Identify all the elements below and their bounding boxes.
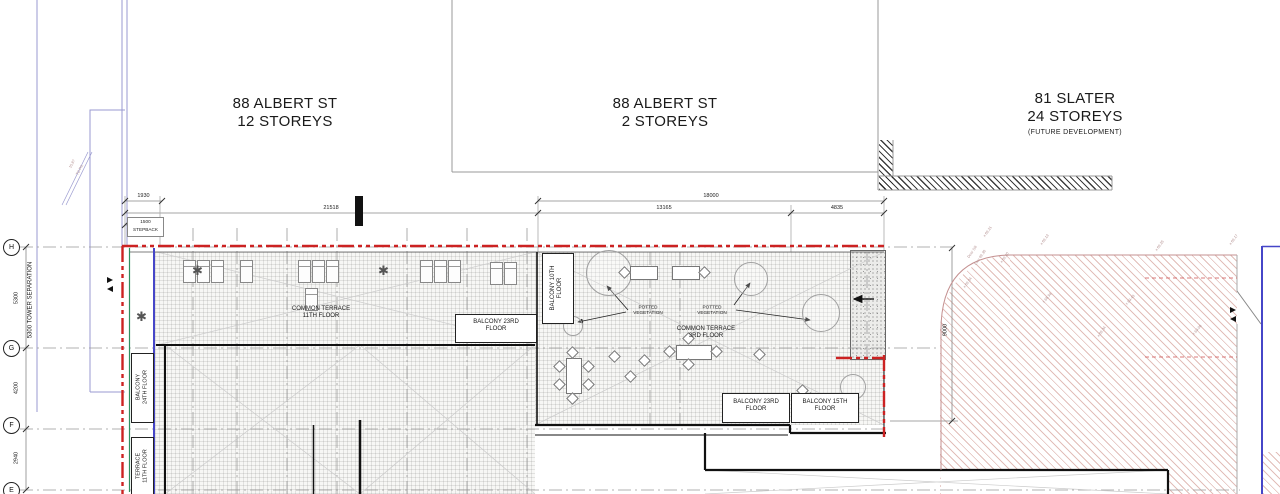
label-balcony-23-mid-box: BALCONY 23RD FLOOR [455,314,537,343]
label-line: 11TH FLOOR [142,439,149,493]
lounger-icon [211,260,224,283]
label-line: VEGETATION [692,311,733,317]
label-balcony-10: BALCONY 10TH FLOOR [550,255,564,321]
lounger-icon [240,260,253,283]
parcel-subtitle: 2 STOREYS [565,113,765,131]
plant-icon: ✱ [136,310,147,323]
label-line: FLOOR [723,406,789,413]
parcel-label-81slater: 81 SLATER 24 STOREYS (FUTURE DEVELOPMENT… [975,90,1175,137]
tree-icon [802,294,840,332]
plant-icon: ✱ [378,264,389,277]
dim-stepback-box: 1500 STEPBACK [127,217,164,237]
dim-13165: 13165 [634,205,694,212]
parcel-title: 81 SLATER [975,90,1175,108]
label-balcony-24: BALCONY 24TH FLOOR [135,355,148,419]
lounger-icon [448,260,461,283]
parcel-subtitle: 24 STOREYS [975,108,1175,126]
label-line: 24TH FLOOR [142,355,149,419]
label-line: FLOOR [456,326,536,333]
label-balcony-15-box: BALCONY 15TH FLOOR [791,393,859,423]
table-icon [630,266,658,280]
grid-bubble-f: F [3,417,20,434]
road-edges [941,255,1261,494]
label-potted-vegetation-1: POTTED VEGETATION [628,306,669,317]
parcel-title: 88 ALBERT ST [565,95,765,113]
tree-icon [734,262,768,296]
dim-4200: 4200 [14,368,21,408]
label-balcony-23-low-box: BALCONY 23RD FLOOR [722,393,790,423]
label-line: 3RD FLOOR [671,333,741,340]
label-potted-vegetation-2: POTTED VEGETATION [692,306,733,317]
parcel-subtitle: 12 STOREYS [185,113,385,131]
tower-separation-note: 5300 TOWER SEPARATION [27,243,34,358]
lounger-icon [490,262,503,285]
parcel-label-88albert-12: 88 ALBERT ST 12 STOREYS [185,95,385,131]
lounger-icon [434,260,447,283]
lounger-icon [504,262,517,285]
label-line: COMMON TERRACE [671,326,741,333]
triangle-right-icon [107,277,113,283]
table-icon [672,266,700,280]
label-line: BALCONY [135,355,142,419]
dim-stepback-label: STEPBACK [132,228,159,234]
lounger-icon [420,260,433,283]
dim-2940: 2940 [14,438,21,478]
label-line: BALCONY 10TH [550,255,557,321]
dim-21518: 21518 [301,205,361,212]
lounger-icon [312,260,325,283]
plan-linework [0,0,1280,494]
building-walls [130,196,1168,494]
label-terrace-11: TERRACE 11TH FLOOR [135,439,148,493]
grid-label: H [9,244,14,251]
dim-4835: 4835 [808,205,866,212]
lounger-icon [326,260,339,283]
site-boundary-red [122,246,884,494]
table-icon [676,345,712,360]
lounger-icon [298,260,311,283]
dim-9000: 9000 [943,310,950,350]
label-line: BALCONY 23RD [456,319,536,326]
grid-bubble-h: H [3,239,20,256]
parcel-title: 88 ALBERT ST [185,95,385,113]
label-line: FLOOR [557,255,564,321]
grid-label: F [9,422,13,429]
grid-bubble-g: G [3,340,20,357]
label-common-terrace-3: COMMON TERRACE 3RD FLOOR [671,326,741,340]
label-line: BALCONY 23RD [723,399,789,406]
label-line: COMMON TERRACE [286,306,356,313]
grid-label: G [9,345,14,352]
grid-label: E [9,487,14,494]
dim-stepback-value: 1500 [132,220,159,226]
label-line: BALCONY 15TH [792,399,858,406]
dim-5300: 5300 [14,278,21,318]
parcel-label-88albert-2: 88 ALBERT ST 2 STOREYS [565,95,765,131]
label-line: FLOOR [792,406,858,413]
label-line: VEGETATION [628,311,669,317]
blue-overlay-lines [154,246,1280,494]
property-lines [37,0,127,412]
triangle-left-icon [107,286,113,292]
grid-bubble-e: E [3,482,20,494]
label-line: TERRACE [135,439,142,493]
triangle-left-icon [1230,316,1236,322]
site-plan-sheet: ✱ ✱ ✱ H G F E 88 ALBERT ST 12 STOREYS 88… [0,0,1280,494]
label-line: 11TH FLOOR [286,313,356,320]
plant-icon: ✱ [192,264,203,277]
parcel-note: (FUTURE DEVELOPMENT) [975,129,1175,137]
label-common-terrace-11: COMMON TERRACE 11TH FLOOR [286,306,356,320]
dim-18000: 18000 [538,193,884,200]
table-icon [566,358,582,394]
triangle-right-icon [1230,307,1236,313]
dim-1930: 1930 [125,193,162,200]
